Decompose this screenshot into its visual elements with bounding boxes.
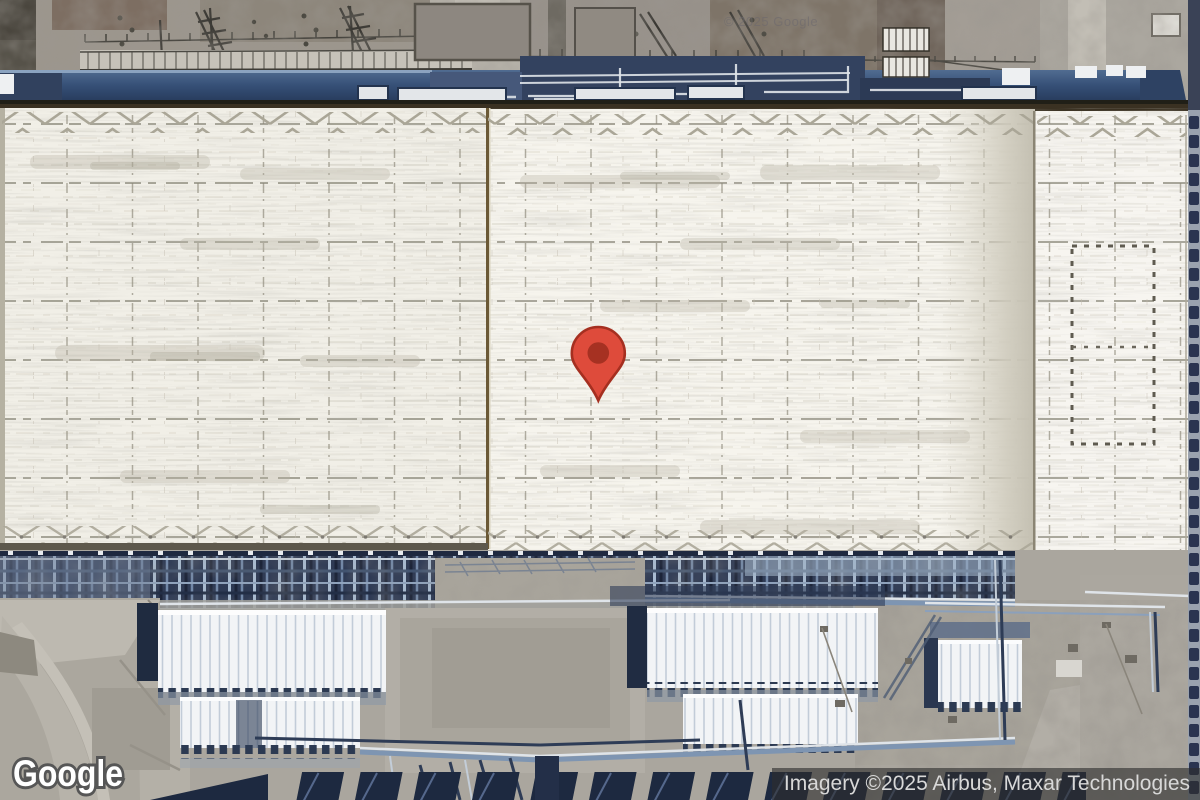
svg-text:Google: Google — [13, 753, 123, 794]
